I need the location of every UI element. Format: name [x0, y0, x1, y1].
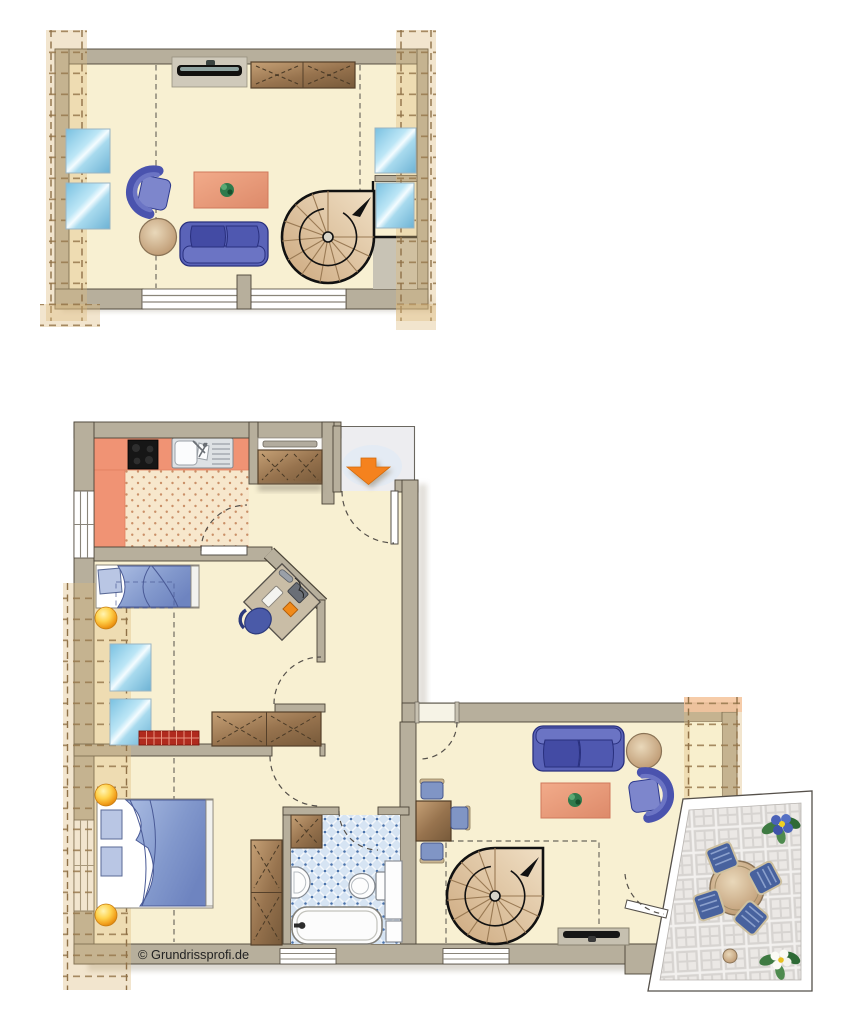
svg-text:© Grundrissprofi.de: © Grundrissprofi.de — [138, 947, 249, 962]
